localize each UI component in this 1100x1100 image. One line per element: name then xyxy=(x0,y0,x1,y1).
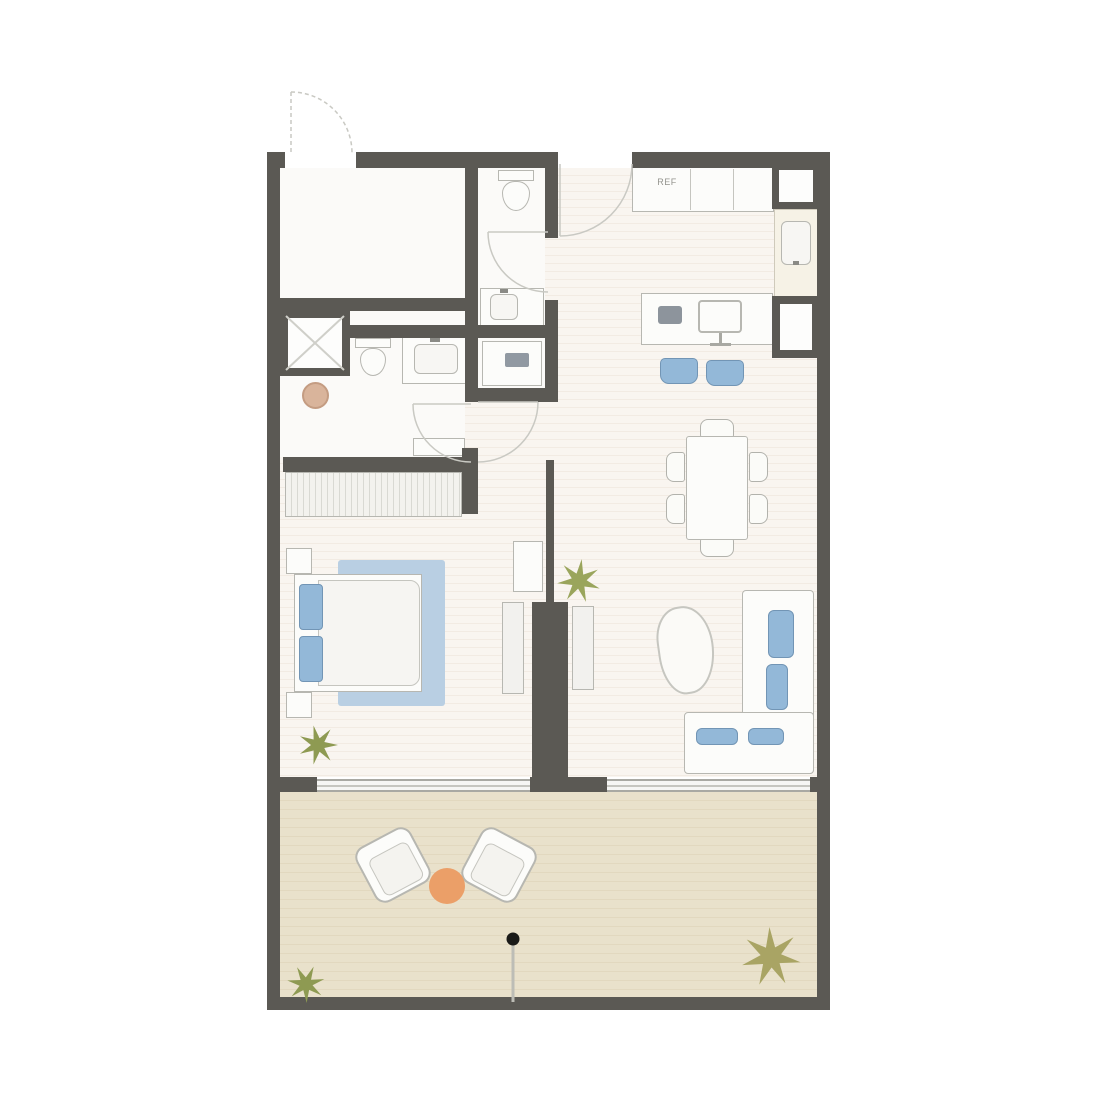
wall-terrace-sep-right xyxy=(810,777,830,792)
wc-sink-basin xyxy=(490,294,518,320)
pillow xyxy=(299,636,323,682)
kitchen-sink xyxy=(781,221,811,265)
monitor xyxy=(698,300,742,333)
duvet xyxy=(318,580,420,686)
wall-laundry-bottom xyxy=(478,388,558,402)
dining-chair-left xyxy=(666,494,685,524)
round-side-table xyxy=(429,868,465,904)
dining-chair-right xyxy=(749,452,768,482)
counter-divider xyxy=(690,169,691,210)
kitchen-faucet xyxy=(793,261,799,265)
bathroom-toilet-tank xyxy=(355,338,391,348)
wall-terrace-sep-middle xyxy=(530,777,607,792)
living-window xyxy=(607,779,810,792)
tv-console-living-side xyxy=(572,606,594,690)
service-shaft-top xyxy=(772,163,820,209)
bathroom-stool xyxy=(302,382,329,409)
desk-chair xyxy=(706,360,744,386)
wall-left xyxy=(267,152,280,1010)
corridor-cabinet xyxy=(513,541,543,592)
counter-divider xyxy=(733,169,734,210)
wall-corridor-thin xyxy=(546,460,554,602)
wall-right xyxy=(817,152,830,1010)
desk-chair xyxy=(660,358,698,384)
nightstand xyxy=(286,692,312,718)
dining-table xyxy=(686,436,748,540)
wardrobe xyxy=(285,472,462,517)
refrigerator-label: REF xyxy=(646,177,688,191)
nightstand xyxy=(286,548,312,574)
terrace-floor xyxy=(280,792,817,997)
hall-cabinet xyxy=(413,438,465,456)
wall-top-middle xyxy=(356,152,558,168)
wall-tv-partition xyxy=(532,602,568,777)
dining-chair-right xyxy=(749,494,768,524)
sofa-cushion xyxy=(748,728,784,745)
entry-closet-door-swing xyxy=(291,92,352,153)
tv-console-bedroom-side xyxy=(502,602,524,694)
monitor-base xyxy=(710,343,731,346)
pillow xyxy=(299,584,323,630)
shower xyxy=(280,310,350,376)
sofa-cushion xyxy=(768,610,794,658)
wall-wc-right-upper xyxy=(545,152,558,238)
bedroom-window xyxy=(317,779,530,792)
floor-plan: REF xyxy=(0,0,1100,1100)
dining-chair-left xyxy=(666,452,685,482)
wall-bedroom-cap xyxy=(462,448,478,514)
wall-wc-right-lower xyxy=(545,300,558,402)
wall-bath-fixtures xyxy=(347,325,558,338)
sofa-cushion xyxy=(696,728,738,745)
washing-machine-door xyxy=(505,353,529,367)
vanity-basin xyxy=(414,344,458,374)
wc-toilet-tank xyxy=(498,170,534,181)
wc-sink-faucet xyxy=(500,289,508,293)
wall-bedroom-top xyxy=(283,457,462,472)
sofa-cushion xyxy=(766,664,788,710)
wall-terrace-sep-left xyxy=(267,777,317,792)
dining-chair-bottom xyxy=(700,538,734,557)
laptop xyxy=(658,306,682,324)
service-shaft-bottom xyxy=(772,296,820,358)
wall-closet-right xyxy=(465,152,478,311)
entry-closet-floor xyxy=(280,168,465,298)
wall-terrace-bottom xyxy=(267,997,830,1010)
